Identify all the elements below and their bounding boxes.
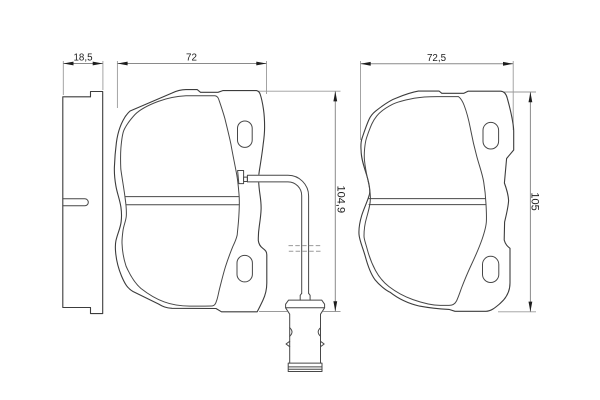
svg-text:104,9: 104,9 bbox=[335, 186, 347, 214]
svg-text:72: 72 bbox=[186, 53, 197, 64]
svg-text:18,5: 18,5 bbox=[73, 53, 93, 64]
svg-text:72,5: 72,5 bbox=[427, 53, 447, 64]
svg-text:105: 105 bbox=[528, 192, 540, 210]
